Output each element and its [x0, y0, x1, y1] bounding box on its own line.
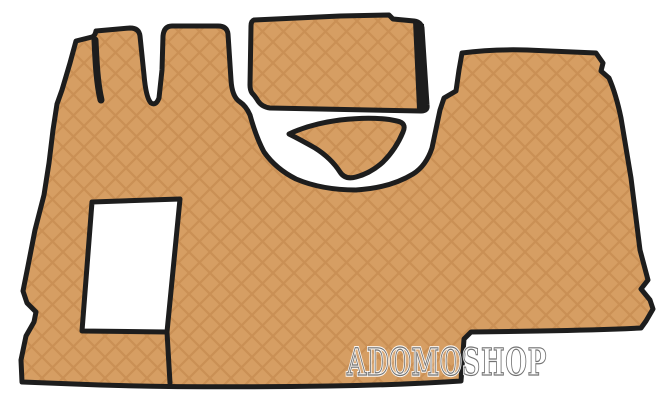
seam-line — [167, 332, 170, 383]
watermark-outline-text: ADOMOSHOP — [346, 340, 547, 384]
mat-pieces-group — [21, 15, 653, 387]
watermark: ADOMOSHOP ADOMOSHOP — [346, 340, 547, 384]
tunnel-mat-shape — [250, 15, 427, 111]
product-photo: ADOMOSHOP ADOMOSHOP — [0, 0, 665, 409]
floor-mat-illustration: ADOMOSHOP ADOMOSHOP — [0, 0, 665, 409]
